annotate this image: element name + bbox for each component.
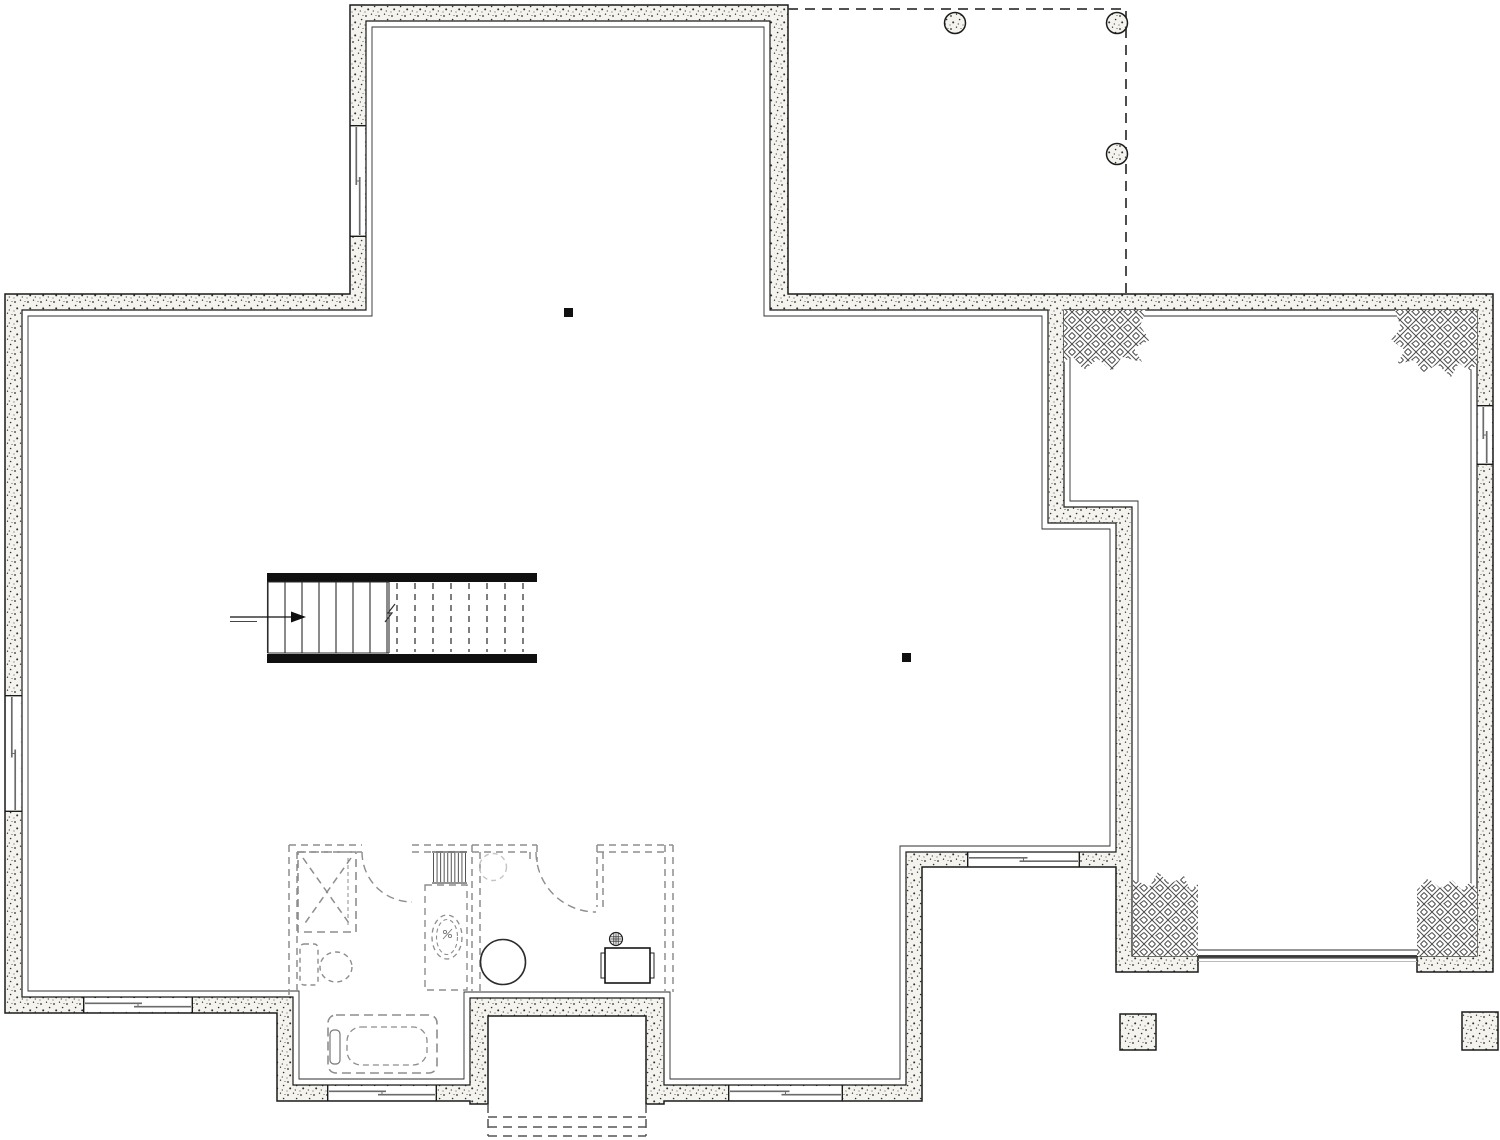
window	[327, 1085, 437, 1101]
door-swing-arc	[362, 852, 412, 902]
window	[5, 695, 22, 812]
window	[350, 125, 366, 237]
toilet-tank	[300, 944, 318, 985]
sink-basin-inner	[437, 920, 458, 955]
garage-pilaster-hatch	[1133, 872, 1198, 956]
bathtub-outline	[328, 1015, 437, 1073]
porch-outline-dashed	[788, 9, 1126, 294]
bathtub-faucet	[330, 1030, 340, 1064]
basement-floor-plan	[0, 0, 1500, 1140]
exterior-wall-outline	[5, 5, 1493, 1104]
faucet-icon	[443, 930, 446, 933]
garage-pilaster-hatch	[1417, 878, 1477, 956]
window	[83, 997, 193, 1013]
foundation-wall-fill	[5, 5, 1493, 1104]
vanity-outline	[425, 885, 467, 990]
faucet-icon	[448, 934, 451, 937]
water-heater	[481, 940, 526, 985]
window	[1477, 405, 1493, 465]
interior-wall-outline	[22, 21, 1116, 1085]
door-swing-arc	[536, 852, 596, 912]
bathtub	[328, 1015, 437, 1073]
garage-pilaster-hatch	[1391, 310, 1477, 377]
porch-column	[1107, 144, 1128, 165]
support-post	[564, 308, 573, 317]
garage-pilaster-hatch	[1064, 310, 1150, 371]
stair-arrow-head	[291, 612, 306, 623]
wall-face-line	[28, 27, 1110, 1079]
porch-column	[945, 13, 966, 34]
stair-stringer	[267, 654, 537, 663]
heater-fixture	[432, 852, 467, 883]
vanity-counter	[425, 885, 467, 990]
staircase	[230, 573, 537, 663]
floor-drain	[610, 933, 623, 946]
ceiling-light-dashed	[480, 854, 507, 881]
stair-stringer	[267, 573, 537, 582]
porch-footing	[1120, 1014, 1156, 1050]
porch-footing	[1462, 1012, 1498, 1050]
toilet-bowl	[320, 952, 352, 982]
porch-column	[1107, 13, 1128, 34]
window	[967, 852, 1080, 867]
shower-stall	[298, 852, 356, 932]
support-post	[902, 653, 911, 662]
bathtub-basin	[347, 1027, 427, 1065]
desk-top	[605, 948, 650, 983]
toilet	[300, 944, 352, 985]
window	[728, 1085, 843, 1101]
desk-table	[601, 948, 654, 983]
floor-plan-page	[0, 0, 1500, 1140]
